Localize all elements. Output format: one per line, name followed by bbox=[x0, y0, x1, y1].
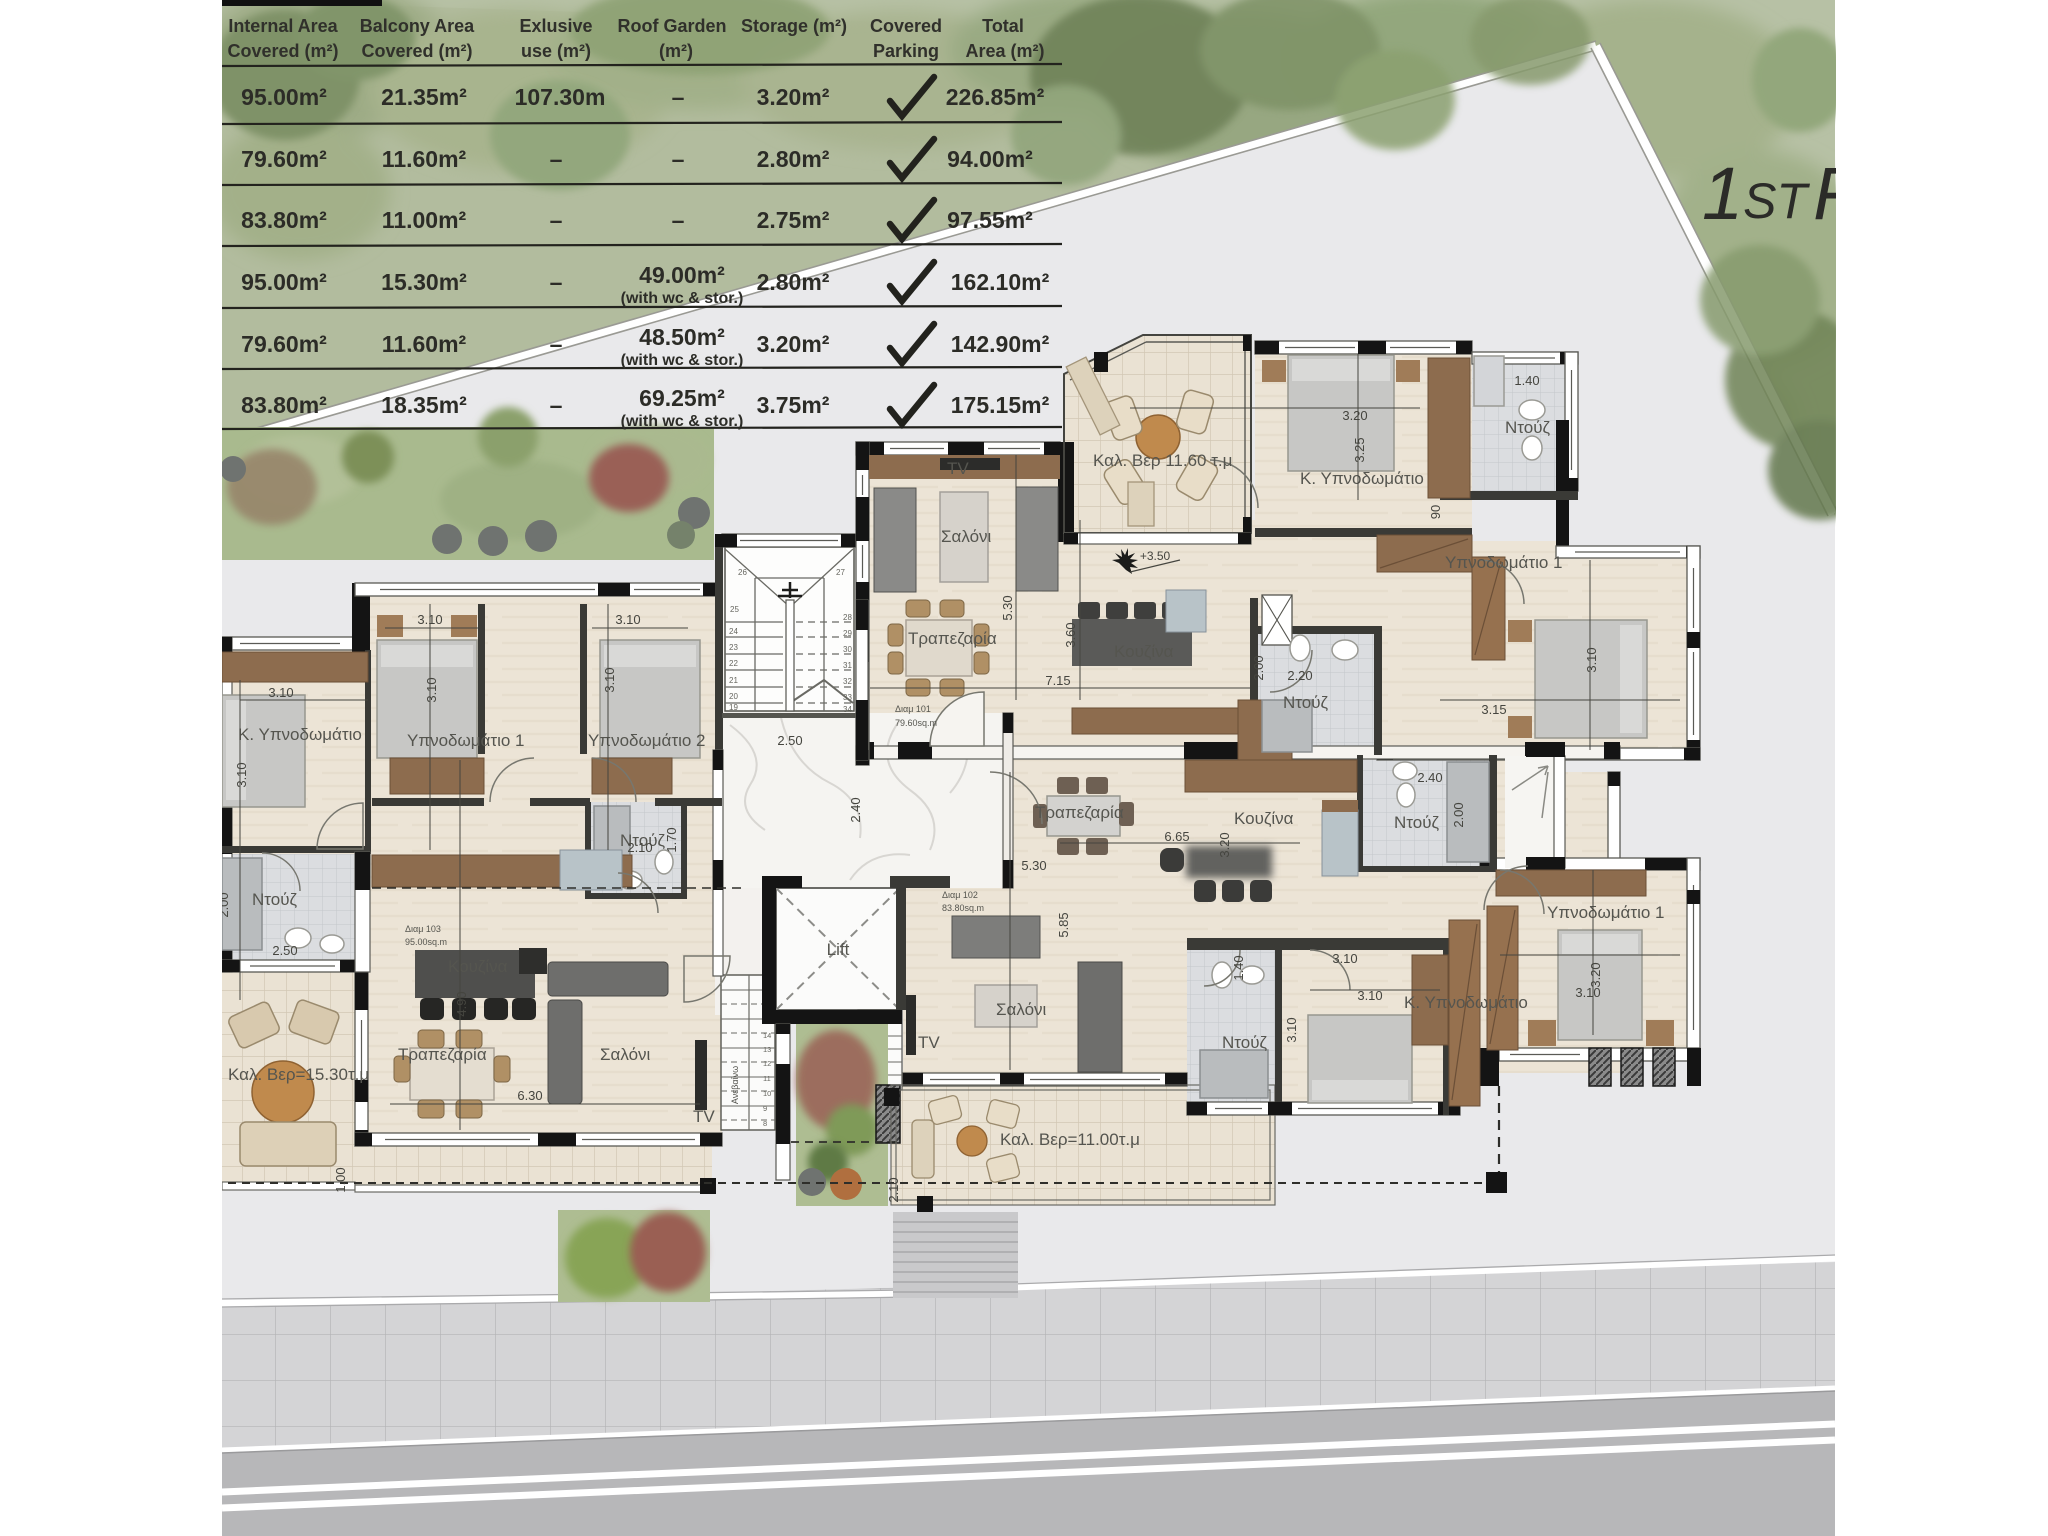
svg-text:Υπνοδωμάτιο 1: Υπνοδωμάτιο 1 bbox=[1445, 553, 1563, 572]
svg-text:107.30m: 107.30m bbox=[515, 84, 606, 110]
svg-text:TV: TV bbox=[947, 459, 969, 478]
svg-text:Υπνοδωμάτιο 2: Υπνοδωμάτιο 2 bbox=[588, 731, 706, 750]
svg-text:Covered: Covered bbox=[870, 16, 942, 36]
svg-text:Lift: Lift bbox=[827, 940, 850, 959]
svg-text:3.10: 3.10 bbox=[268, 685, 293, 700]
svg-text:11.60m²: 11.60m² bbox=[382, 146, 467, 172]
svg-text:–: – bbox=[550, 331, 563, 357]
svg-text:Covered (m²): Covered (m²) bbox=[361, 41, 472, 61]
svg-text:Exlusive: Exlusive bbox=[519, 16, 592, 36]
svg-text:13: 13 bbox=[763, 1045, 771, 1054]
svg-text:29: 29 bbox=[843, 629, 852, 638]
svg-text:Κ. Υπνοδωμάτιο: Κ. Υπνοδωμάτιο bbox=[1404, 993, 1528, 1012]
svg-text:Καλ. Βερ=11.00τ.μ: Καλ. Βερ=11.00τ.μ bbox=[1000, 1130, 1140, 1149]
svg-text:5.30: 5.30 bbox=[1021, 858, 1046, 873]
svg-text:3.10: 3.10 bbox=[234, 762, 249, 787]
svg-text:15.30m²: 15.30m² bbox=[381, 269, 467, 295]
svg-text:26: 26 bbox=[738, 568, 747, 577]
svg-text:8: 8 bbox=[763, 1119, 767, 1128]
svg-text:Διαμ 102: Διαμ 102 bbox=[942, 890, 978, 900]
svg-text:2.20: 2.20 bbox=[1287, 668, 1312, 683]
svg-text:27: 27 bbox=[836, 568, 845, 577]
svg-text:3.10: 3.10 bbox=[1332, 951, 1357, 966]
svg-text:1.40: 1.40 bbox=[1514, 373, 1539, 388]
svg-text:3.10: 3.10 bbox=[1357, 988, 1382, 1003]
svg-text:5.85: 5.85 bbox=[1056, 912, 1071, 937]
svg-text:95.00m²: 95.00m² bbox=[241, 269, 327, 295]
svg-text:3.10: 3.10 bbox=[424, 677, 439, 702]
svg-text:2.50: 2.50 bbox=[777, 733, 802, 748]
svg-text:TV: TV bbox=[918, 1033, 940, 1052]
svg-text:11: 11 bbox=[763, 1074, 771, 1083]
svg-text:49.00m²: 49.00m² bbox=[639, 262, 725, 288]
svg-text:4.90: 4.90 bbox=[454, 991, 469, 1016]
svg-text:162.10m²: 162.10m² bbox=[951, 269, 1050, 295]
svg-text:Σαλόνι: Σαλόνι bbox=[996, 1000, 1047, 1019]
svg-text:3.10: 3.10 bbox=[615, 612, 640, 627]
svg-text:25: 25 bbox=[730, 605, 739, 614]
svg-text:Area (m²): Area (m²) bbox=[965, 41, 1044, 61]
svg-text:Διαμ 103: Διαμ 103 bbox=[405, 924, 441, 934]
svg-text:Κουζίνα: Κουζίνα bbox=[1234, 809, 1294, 828]
svg-text:9: 9 bbox=[763, 1104, 767, 1113]
svg-text:6.30: 6.30 bbox=[517, 1088, 542, 1103]
svg-text:Υπνοδωμάτιο 1: Υπνοδωμάτιο 1 bbox=[407, 731, 525, 750]
svg-text:18.35m²: 18.35m² bbox=[381, 392, 467, 418]
svg-text:31: 31 bbox=[843, 661, 852, 670]
svg-text:142.90m²: 142.90m² bbox=[951, 331, 1050, 357]
svg-text:Κ. Υπνοδωμάτιο: Κ. Υπνοδωμάτιο bbox=[238, 725, 362, 744]
svg-text:33: 33 bbox=[843, 693, 852, 702]
svg-text:2.10: 2.10 bbox=[886, 1177, 901, 1202]
svg-text:90: 90 bbox=[1428, 505, 1443, 519]
svg-text:22: 22 bbox=[729, 659, 738, 668]
svg-text:95.00sq.m: 95.00sq.m bbox=[405, 937, 447, 947]
svg-text:Υπνοδωμάτιο 1: Υπνοδωμάτιο 1 bbox=[1547, 903, 1665, 922]
svg-text:(with wc & stor.): (with wc & stor.) bbox=[621, 352, 744, 369]
svg-text:97.55m²: 97.55m² bbox=[947, 207, 1033, 233]
svg-text:TV: TV bbox=[693, 1107, 715, 1126]
svg-text:2.80m²: 2.80m² bbox=[757, 146, 830, 172]
svg-text:Parking: Parking bbox=[873, 41, 939, 61]
svg-text:3.20m²: 3.20m² bbox=[757, 331, 830, 357]
svg-text:23: 23 bbox=[729, 643, 738, 652]
svg-text:Ντούζ: Ντούζ bbox=[1394, 813, 1440, 832]
svg-text:11.00m²: 11.00m² bbox=[382, 207, 467, 233]
svg-text:3.25: 3.25 bbox=[1352, 437, 1367, 462]
svg-text:use (m²): use (m²) bbox=[521, 41, 591, 61]
svg-text:1.00: 1.00 bbox=[333, 1167, 348, 1192]
svg-text:69.25m²: 69.25m² bbox=[639, 385, 725, 411]
svg-text:Roof Garden: Roof Garden bbox=[617, 16, 726, 36]
svg-text:(with wc & stor.): (with wc & stor.) bbox=[621, 413, 744, 430]
svg-text:Σαλόνι: Σαλόνι bbox=[600, 1045, 651, 1064]
svg-text:Internal Area: Internal Area bbox=[228, 16, 338, 36]
svg-text:11.60m²: 11.60m² bbox=[382, 331, 467, 357]
svg-text:2.75m²: 2.75m² bbox=[757, 207, 830, 233]
svg-text:1.40: 1.40 bbox=[1231, 955, 1246, 980]
svg-text:83.80m²: 83.80m² bbox=[241, 207, 327, 233]
svg-text:Κουζίνα: Κουζίνα bbox=[1114, 642, 1174, 661]
svg-text:95.00m²: 95.00m² bbox=[241, 84, 327, 110]
svg-text:Ντούζ: Ντούζ bbox=[252, 890, 298, 909]
svg-text:79.60m²: 79.60m² bbox=[241, 146, 327, 172]
svg-text:2.50: 2.50 bbox=[272, 943, 297, 958]
svg-text:–: – bbox=[550, 269, 563, 295]
svg-text:2.00: 2.00 bbox=[1451, 802, 1466, 827]
svg-text:(m²): (m²) bbox=[659, 41, 693, 61]
svg-text:3.15: 3.15 bbox=[1481, 702, 1506, 717]
svg-text:3.20: 3.20 bbox=[1217, 832, 1232, 857]
svg-text:12: 12 bbox=[763, 1059, 771, 1068]
svg-text:83.80m²: 83.80m² bbox=[241, 392, 327, 418]
svg-text:7.15: 7.15 bbox=[1045, 673, 1070, 688]
svg-text:2.10: 2.10 bbox=[627, 840, 652, 855]
svg-text:79.60m²: 79.60m² bbox=[241, 331, 327, 357]
svg-text:Τραπεζαρία: Τραπεζαρία bbox=[1035, 803, 1124, 822]
svg-text:Τραπεζαρία: Τραπεζαρία bbox=[398, 1045, 487, 1064]
svg-text:32: 32 bbox=[843, 677, 852, 686]
svg-text:Ντούζ: Ντούζ bbox=[1222, 1033, 1268, 1052]
svg-text:48.50m²: 48.50m² bbox=[639, 324, 725, 350]
svg-text:30: 30 bbox=[843, 645, 852, 654]
svg-text:2.40: 2.40 bbox=[848, 797, 863, 822]
svg-text:Ντούζ: Ντούζ bbox=[1505, 418, 1551, 437]
svg-text:3.10: 3.10 bbox=[417, 612, 442, 627]
svg-text:Τραπεζαρία: Τραπεζαρία bbox=[908, 629, 997, 648]
svg-text:2.00: 2.00 bbox=[1251, 655, 1266, 680]
svg-text:3.60: 3.60 bbox=[1063, 622, 1078, 647]
svg-text:5.30: 5.30 bbox=[1000, 595, 1015, 620]
svg-text:79.60sq.m: 79.60sq.m bbox=[895, 718, 937, 728]
svg-text:–: – bbox=[550, 207, 563, 233]
svg-text:34: 34 bbox=[843, 705, 852, 714]
svg-text:3.20: 3.20 bbox=[1588, 962, 1603, 987]
svg-text:Total: Total bbox=[982, 16, 1024, 36]
svg-text:Covered (m²): Covered (m²) bbox=[227, 41, 338, 61]
svg-text:1.70: 1.70 bbox=[664, 827, 679, 852]
svg-text:–: – bbox=[550, 392, 563, 418]
svg-text:24: 24 bbox=[729, 627, 738, 636]
svg-text:Κουζίνα: Κουζίνα bbox=[448, 957, 508, 976]
svg-text:Σαλόνι: Σαλόνι bbox=[941, 527, 992, 546]
svg-text:175.15m²: 175.15m² bbox=[951, 392, 1050, 418]
svg-text:Ντούζ: Ντούζ bbox=[1283, 693, 1329, 712]
svg-text:Καλ. Βερ=15.30τ.μ: Καλ. Βερ=15.30τ.μ bbox=[228, 1065, 369, 1084]
svg-text:–: – bbox=[672, 84, 685, 110]
svg-text:Storage (m²): Storage (m²) bbox=[741, 16, 847, 36]
svg-text:3.10: 3.10 bbox=[1284, 1017, 1299, 1042]
svg-text:19: 19 bbox=[729, 703, 738, 712]
svg-text:–: – bbox=[672, 146, 685, 172]
svg-text:3.20m²: 3.20m² bbox=[757, 84, 830, 110]
svg-text:Κ. Υπνοδωμάτιο: Κ. Υπνοδωμάτιο bbox=[1300, 469, 1424, 488]
svg-text:3.20: 3.20 bbox=[1342, 408, 1367, 423]
svg-text:14: 14 bbox=[763, 1031, 771, 1040]
svg-text:3.10: 3.10 bbox=[1584, 647, 1599, 672]
svg-text:–: – bbox=[672, 207, 685, 233]
svg-text:28: 28 bbox=[843, 613, 852, 622]
svg-text:10: 10 bbox=[763, 1089, 771, 1098]
svg-text:3.75m²: 3.75m² bbox=[757, 392, 830, 418]
svg-text:83.80sq.m: 83.80sq.m bbox=[942, 903, 984, 913]
svg-text:6.65: 6.65 bbox=[1164, 829, 1189, 844]
svg-text:94.00m²: 94.00m² bbox=[947, 146, 1033, 172]
svg-text:Balcony Area: Balcony Area bbox=[360, 16, 475, 36]
svg-text:3.10: 3.10 bbox=[602, 667, 617, 692]
svg-text:20: 20 bbox=[729, 692, 738, 701]
svg-text:2.80m²: 2.80m² bbox=[757, 269, 830, 295]
svg-text:226.85m²: 226.85m² bbox=[946, 84, 1045, 110]
svg-text:21.35m²: 21.35m² bbox=[381, 84, 467, 110]
svg-text:Διαμ 101: Διαμ 101 bbox=[895, 704, 931, 714]
svg-text:2.40: 2.40 bbox=[1417, 770, 1442, 785]
svg-text:+3.50: +3.50 bbox=[1140, 549, 1171, 563]
svg-text:Ανεβαίνω: Ανεβαίνω bbox=[730, 1066, 740, 1104]
svg-text:Καλ. Βερ 11.60 τ.μ: Καλ. Βερ 11.60 τ.μ bbox=[1093, 451, 1232, 470]
svg-text:–: – bbox=[550, 146, 563, 172]
svg-text:(with wc & stor.): (with wc & stor.) bbox=[621, 290, 744, 307]
svg-text:21: 21 bbox=[729, 676, 738, 685]
